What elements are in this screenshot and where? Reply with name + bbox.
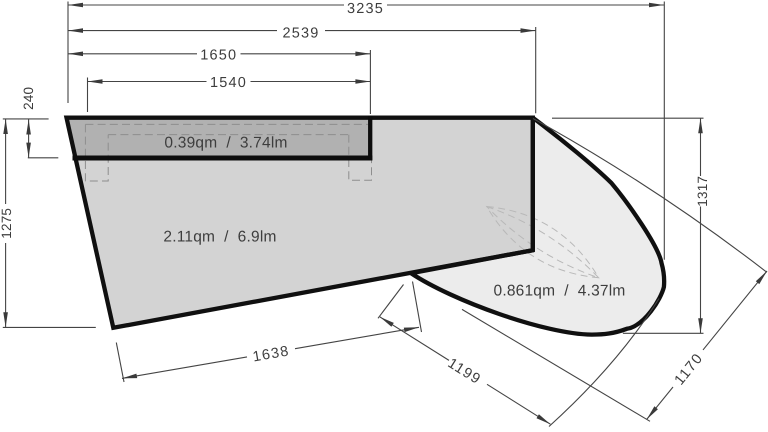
svg-text:1199: 1199 (445, 355, 484, 388)
svg-text:1650: 1650 (200, 47, 237, 63)
svg-text:1170: 1170 (672, 350, 707, 388)
svg-text:2539: 2539 (282, 25, 319, 41)
svg-text:2.11qm / 6.9lm: 2.11qm / 6.9lm (163, 228, 276, 245)
svg-text:1540: 1540 (210, 75, 247, 91)
svg-text:0.39qm / 3.74lm: 0.39qm / 3.74lm (164, 135, 287, 152)
svg-text:0.861qm / 4.37lm: 0.861qm / 4.37lm (494, 282, 626, 299)
svg-text:1638: 1638 (252, 343, 291, 365)
svg-text:3235: 3235 (347, 1, 384, 17)
svg-text:240: 240 (21, 87, 36, 110)
svg-text:1275: 1275 (0, 208, 14, 239)
svg-text:1317: 1317 (695, 176, 710, 207)
